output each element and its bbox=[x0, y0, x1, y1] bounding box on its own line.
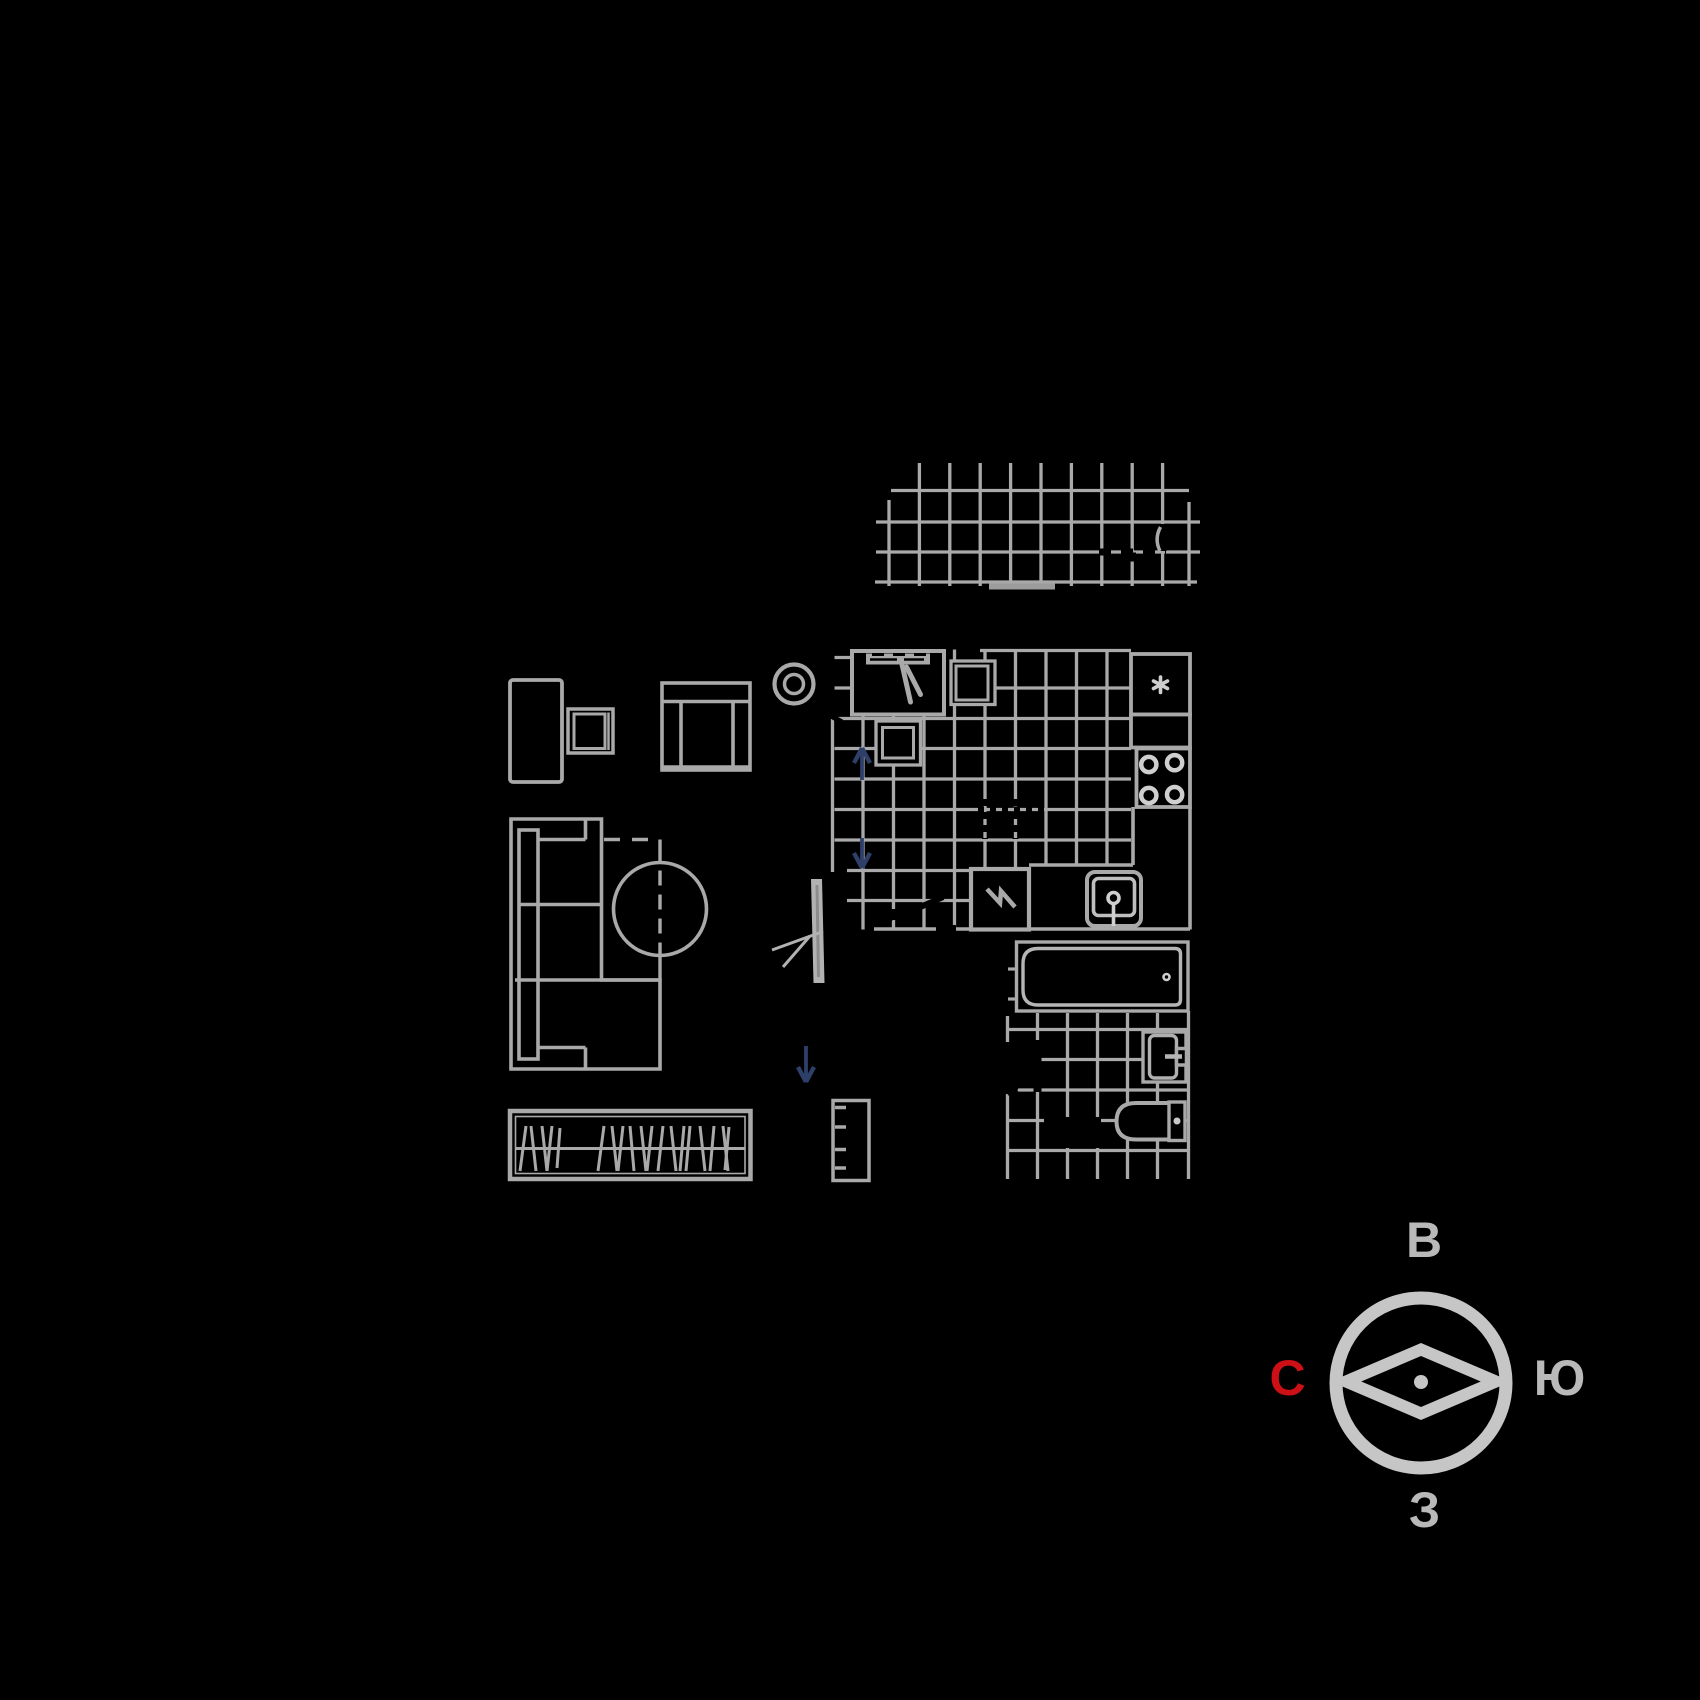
svg-text:В: В bbox=[1406, 1212, 1442, 1268]
svg-text:З: З bbox=[1409, 1482, 1440, 1538]
svg-text:Ю: Ю bbox=[1534, 1350, 1586, 1406]
svg-text:С: С bbox=[1269, 1350, 1305, 1406]
